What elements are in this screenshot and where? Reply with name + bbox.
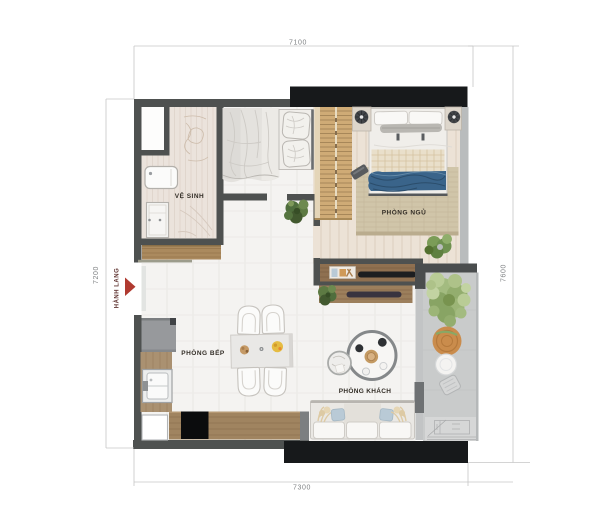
svg-text:PHÒNG KHÁCH: PHÒNG KHÁCH [339, 386, 391, 395]
svg-text:7200: 7200 [93, 266, 100, 284]
svg-text:PHÒNG NGỦ: PHÒNG NGỦ [382, 208, 427, 217]
svg-text:HÀNH LANG: HÀNH LANG [114, 268, 121, 309]
svg-text:VỆ SINH: VỆ SINH [175, 191, 205, 200]
svg-text:7600: 7600 [501, 264, 508, 282]
svg-text:7100: 7100 [289, 40, 307, 47]
svg-text:7300: 7300 [293, 485, 311, 492]
